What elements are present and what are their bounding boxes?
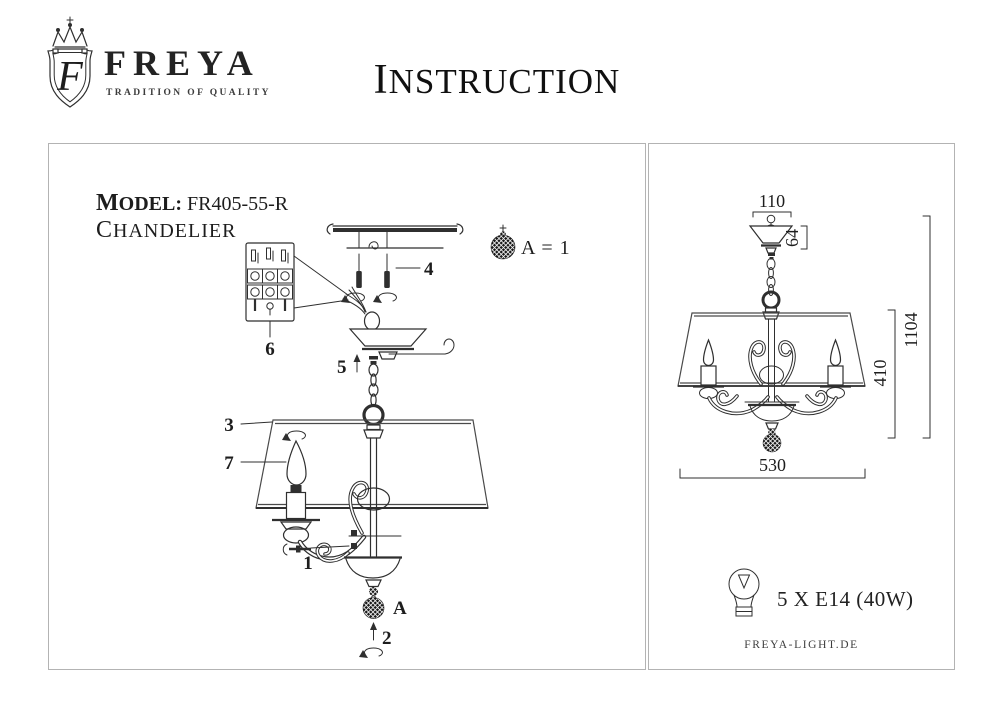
page-title: INSTRUCTION	[330, 56, 664, 104]
light-bulb-icon	[729, 569, 759, 616]
brand-crest-icon: F	[40, 16, 104, 116]
part-label-1: 1	[303, 553, 313, 574]
legend: A = 1	[491, 225, 571, 259]
woven-ball	[760, 366, 784, 384]
chain: 5	[337, 354, 383, 438]
crystal-ball-icon	[491, 235, 515, 259]
assembly-diagram: 4 5	[49, 144, 645, 669]
website: FREYA-LIGHT.DE	[649, 639, 954, 651]
chain	[763, 253, 779, 319]
candle-and-bulb: 7	[224, 431, 320, 543]
brand-tagline: TRADITION OF QUALITY	[106, 88, 271, 98]
mounting-bracket	[347, 232, 443, 249]
part-label-a: A	[393, 598, 407, 619]
hook-icon	[767, 215, 775, 223]
dim-64: 64	[782, 229, 802, 247]
candle-left	[693, 340, 724, 399]
dim-total-width: 530	[680, 455, 865, 478]
crystal-ball-icon	[763, 434, 781, 452]
canopy	[350, 329, 454, 359]
hanging-ring	[364, 406, 383, 425]
dim-110: 110	[759, 191, 785, 211]
ceiling	[327, 224, 463, 234]
assembly-panel: MODEL: FR405-55-R CHANDELIER	[48, 143, 646, 670]
brand-name: FREYA	[104, 42, 260, 84]
candle-bulb-icon	[287, 441, 306, 485]
part-label-7: 7	[224, 453, 234, 474]
scroll-arms	[709, 342, 836, 413]
mounting-screws: 4	[356, 254, 434, 288]
part-label-6: 6	[265, 339, 275, 360]
dim-530: 530	[759, 455, 786, 475]
instruction-sheet: F FREYA TRADITION OF QUALITY INSTRUCTION…	[0, 0, 1000, 706]
logo-letter: F	[56, 54, 83, 100]
crystal-ball-icon	[363, 598, 384, 619]
hook-icon	[444, 339, 454, 354]
wire-twist-knot	[365, 312, 380, 330]
screw-icon	[283, 544, 287, 555]
dim-total-height: 1104	[901, 216, 930, 438]
up-arrow-icon	[354, 354, 361, 372]
dimensions-panel: 110 64	[648, 143, 955, 670]
dim-canopy-height: 64	[782, 226, 807, 249]
part-label-2: 2	[382, 628, 392, 649]
rotate-arrow-icon	[359, 648, 382, 658]
rotate-arrow-icon	[373, 293, 396, 303]
dim-shade-height: 410	[870, 310, 895, 438]
rotate-arrow-icon	[282, 431, 305, 441]
hanging-ring	[763, 292, 779, 308]
dim-canopy-width: 110	[753, 191, 791, 217]
part-label-3: 3	[224, 415, 234, 436]
terminal-box: 6	[246, 243, 348, 360]
shield-icon: F	[48, 49, 92, 107]
bottom-bowl: A 2	[344, 558, 407, 659]
crystal-finial	[369, 587, 378, 596]
bulb-spec: 5 X E14 (40W)	[777, 587, 914, 612]
dim-410: 410	[870, 360, 890, 387]
legend-text: A = 1	[521, 237, 571, 259]
center-column	[760, 319, 784, 402]
part-label-4: 4	[424, 259, 434, 280]
candle-right	[820, 340, 851, 399]
dim-1104: 1104	[901, 312, 921, 347]
crown-icon	[53, 17, 87, 47]
up-arrow-icon	[370, 622, 377, 640]
part-label-5: 5	[337, 357, 347, 378]
